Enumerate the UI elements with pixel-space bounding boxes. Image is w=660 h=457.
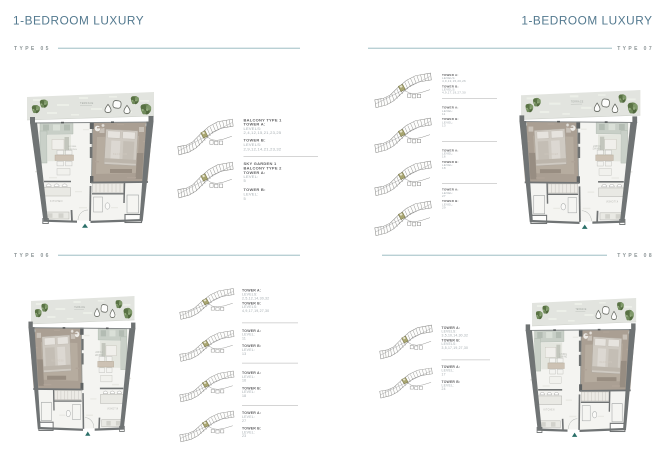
svg-text:13: 13 [442, 123, 446, 127]
svg-text:23: 23 [242, 434, 246, 438]
svg-text:16: 16 [242, 379, 246, 383]
svg-text:27: 27 [442, 194, 446, 198]
svg-text:5: 5 [244, 196, 247, 201]
svg-text:3,5,10,14,30,32: 3,5,10,14,30,32 [442, 333, 469, 337]
svg-text:4,9,17,19,27,30: 4,9,17,19,27,30 [242, 309, 269, 313]
svg-text:2,4,12,15,21,23,25: 2,4,12,15,21,23,25 [244, 130, 282, 135]
svg-text:27: 27 [242, 419, 246, 423]
svg-text:TYPE 06: TYPE 06 [14, 253, 51, 259]
svg-text:16: 16 [442, 155, 446, 159]
svg-text:17: 17 [442, 372, 446, 376]
svg-text:3,5,17,19,27,30: 3,5,17,19,27,30 [442, 346, 469, 350]
svg-text:4,9,13,15,20,26: 4,9,13,15,20,26 [442, 79, 466, 83]
svg-text:29: 29 [442, 205, 446, 209]
svg-text:11: 11 [442, 112, 446, 116]
svg-text:24: 24 [442, 387, 446, 391]
svg-text:2,5,12,14,30,32: 2,5,12,14,30,32 [242, 296, 269, 300]
svg-text:1-BEDROOM LUXURY: 1-BEDROOM LUXURY [521, 14, 652, 28]
svg-text:13: 13 [242, 352, 246, 356]
svg-text:4,9,17,19,27,30: 4,9,17,19,27,30 [442, 90, 466, 94]
svg-text:11: 11 [242, 337, 246, 341]
svg-text:18: 18 [242, 394, 246, 398]
svg-text:TYPE 05: TYPE 05 [14, 46, 51, 52]
svg-text:2,9,12,14,21,23,32: 2,9,12,14,21,23,32 [244, 146, 282, 151]
svg-text:TYPE 08: TYPE 08 [617, 253, 654, 259]
svg-text:1-BEDROOM LUXURY: 1-BEDROOM LUXURY [13, 14, 144, 28]
svg-text:18: 18 [442, 166, 446, 170]
svg-text:TYPE 07: TYPE 07 [617, 46, 654, 52]
